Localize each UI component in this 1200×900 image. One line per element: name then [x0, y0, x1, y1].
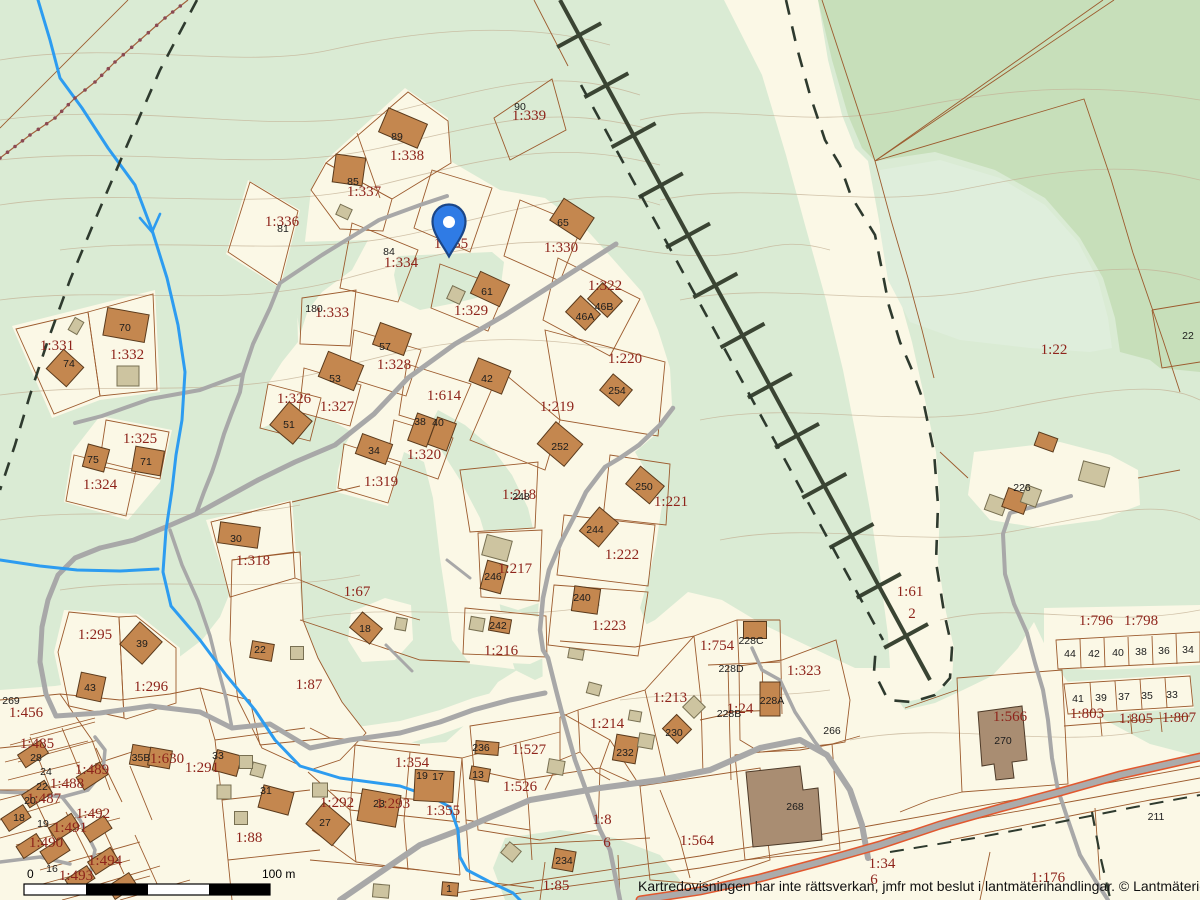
svg-text:1:87: 1:87 — [296, 677, 323, 693]
svg-text:42: 42 — [1088, 648, 1100, 660]
svg-text:1:324: 1:324 — [83, 477, 118, 493]
svg-text:1:219: 1:219 — [540, 399, 574, 415]
svg-text:1:222: 1:222 — [605, 547, 639, 563]
svg-text:35B: 35B — [132, 752, 151, 764]
svg-text:1:338: 1:338 — [390, 148, 424, 164]
svg-text:18: 18 — [359, 623, 371, 635]
svg-text:22: 22 — [36, 781, 48, 793]
svg-text:46A: 46A — [576, 311, 595, 323]
svg-text:30: 30 — [230, 533, 242, 545]
svg-text:90: 90 — [514, 101, 526, 113]
svg-text:42: 42 — [481, 373, 493, 385]
svg-text:236: 236 — [472, 742, 490, 754]
svg-text:1:221: 1:221 — [654, 494, 688, 510]
svg-text:33: 33 — [1166, 689, 1178, 701]
svg-text:246: 246 — [484, 571, 502, 583]
svg-text:1:330: 1:330 — [544, 240, 578, 256]
svg-text:1:220: 1:220 — [608, 351, 642, 367]
svg-text:234: 234 — [555, 855, 573, 867]
svg-text:1:328: 1:328 — [377, 357, 411, 373]
svg-text:1:527: 1:527 — [512, 742, 547, 758]
svg-text:40: 40 — [1112, 647, 1124, 659]
svg-text:1:85: 1:85 — [543, 878, 570, 894]
svg-text:1:332: 1:332 — [110, 347, 144, 363]
svg-text:1:223: 1:223 — [592, 618, 626, 634]
svg-text:1:490: 1:490 — [29, 835, 63, 851]
svg-text:1:488: 1:488 — [50, 776, 84, 792]
svg-text:1:796: 1:796 — [1079, 613, 1114, 629]
svg-text:40: 40 — [432, 417, 444, 429]
svg-text:1:8: 1:8 — [592, 812, 611, 828]
svg-text:228B: 228B — [717, 708, 742, 720]
svg-text:27: 27 — [319, 817, 331, 829]
svg-text:65: 65 — [557, 217, 569, 229]
svg-text:Kartredovisningen har inte rät: Kartredovisningen har inte rättsverkan, … — [638, 878, 1200, 894]
svg-text:1:326: 1:326 — [277, 391, 312, 407]
svg-text:250: 250 — [635, 481, 653, 493]
svg-text:228C: 228C — [738, 635, 764, 647]
svg-text:31: 31 — [260, 785, 272, 797]
svg-text:17: 17 — [432, 771, 444, 783]
svg-text:84: 84 — [383, 246, 395, 258]
svg-text:1:291: 1:291 — [185, 760, 219, 776]
svg-text:38: 38 — [414, 416, 426, 428]
svg-text:43: 43 — [84, 682, 96, 694]
svg-text:1:494: 1:494 — [88, 853, 123, 869]
svg-text:1:493: 1:493 — [59, 868, 93, 884]
svg-text:28: 28 — [30, 752, 42, 764]
svg-text:1:325: 1:325 — [123, 431, 157, 447]
svg-text:228A: 228A — [760, 695, 785, 707]
svg-text:1:213: 1:213 — [653, 690, 687, 706]
svg-text:232: 232 — [616, 747, 634, 759]
svg-text:1:319: 1:319 — [364, 474, 398, 490]
svg-text:34: 34 — [1182, 644, 1194, 656]
svg-text:1:320: 1:320 — [407, 447, 441, 463]
svg-text:13: 13 — [472, 769, 484, 781]
svg-text:51: 51 — [283, 419, 295, 431]
svg-text:2: 2 — [908, 606, 916, 622]
svg-text:16: 16 — [46, 863, 58, 875]
svg-text:44: 44 — [1064, 648, 1076, 660]
svg-text:1: 1 — [446, 883, 452, 895]
svg-text:1:318: 1:318 — [236, 553, 270, 569]
svg-text:1:566: 1:566 — [993, 709, 1028, 725]
svg-text:254: 254 — [608, 385, 626, 397]
svg-text:18: 18 — [13, 812, 25, 824]
svg-text:22: 22 — [254, 644, 266, 656]
svg-text:270: 270 — [994, 735, 1012, 747]
svg-text:1:61: 1:61 — [897, 584, 924, 600]
svg-text:1:754: 1:754 — [700, 638, 735, 654]
svg-text:24: 24 — [40, 766, 52, 778]
svg-text:1:295: 1:295 — [78, 627, 112, 643]
svg-text:37: 37 — [1118, 691, 1130, 703]
svg-text:70: 70 — [119, 322, 131, 334]
svg-text:100 m: 100 m — [262, 867, 295, 881]
svg-text:1:331: 1:331 — [40, 338, 74, 354]
svg-text:35: 35 — [1141, 690, 1153, 702]
svg-text:1:88: 1:88 — [236, 830, 263, 846]
svg-text:268: 268 — [786, 801, 804, 813]
svg-text:211: 211 — [1148, 811, 1165, 823]
svg-text:33: 33 — [212, 750, 224, 762]
svg-text:1:217: 1:217 — [498, 561, 533, 577]
svg-text:244: 244 — [586, 524, 604, 536]
svg-text:19: 19 — [37, 818, 49, 830]
svg-text:1:323: 1:323 — [787, 663, 821, 679]
svg-text:74: 74 — [63, 358, 75, 370]
svg-text:1:805: 1:805 — [1119, 711, 1153, 727]
svg-text:1:491: 1:491 — [53, 820, 87, 836]
svg-text:1:630: 1:630 — [150, 751, 184, 767]
svg-text:19: 19 — [416, 770, 428, 782]
svg-text:39: 39 — [136, 638, 148, 650]
svg-text:6: 6 — [603, 835, 611, 851]
svg-text:34: 34 — [368, 445, 380, 457]
svg-text:20: 20 — [24, 795, 36, 807]
svg-text:39: 39 — [1095, 692, 1107, 704]
svg-text:1:526: 1:526 — [503, 779, 538, 795]
svg-text:269: 269 — [2, 695, 20, 707]
svg-text:266: 266 — [823, 725, 841, 737]
svg-text:1:329: 1:329 — [454, 303, 488, 319]
svg-text:1:216: 1:216 — [484, 643, 519, 659]
svg-text:89: 89 — [391, 131, 403, 143]
svg-text:1:564: 1:564 — [680, 833, 715, 849]
svg-text:36: 36 — [1158, 645, 1170, 657]
svg-text:61: 61 — [481, 286, 493, 298]
svg-text:1:214: 1:214 — [590, 716, 625, 732]
svg-text:240: 240 — [573, 592, 591, 604]
svg-text:46B: 46B — [595, 301, 614, 313]
svg-text:1:614: 1:614 — [427, 388, 462, 404]
svg-text:1:354: 1:354 — [395, 755, 430, 771]
svg-text:226: 226 — [1013, 482, 1031, 494]
svg-text:38: 38 — [1135, 646, 1147, 658]
svg-text:228D: 228D — [718, 663, 744, 675]
svg-text:41: 41 — [1072, 693, 1084, 705]
svg-text:1:355: 1:355 — [426, 803, 460, 819]
svg-text:75: 75 — [87, 454, 99, 466]
svg-text:1:327: 1:327 — [320, 399, 355, 415]
svg-text:23: 23 — [373, 798, 385, 810]
svg-text:85: 85 — [347, 176, 359, 188]
svg-text:22: 22 — [1182, 330, 1194, 342]
svg-text:0: 0 — [27, 867, 34, 881]
svg-text:230: 230 — [665, 727, 683, 739]
svg-text:1:34: 1:34 — [869, 856, 896, 872]
svg-text:1:322: 1:322 — [588, 278, 622, 294]
svg-text:1:807: 1:807 — [1162, 710, 1197, 726]
svg-text:1:456: 1:456 — [9, 705, 44, 721]
svg-text:1:67: 1:67 — [344, 584, 371, 600]
svg-text:1:296: 1:296 — [134, 679, 169, 695]
svg-text:53: 53 — [329, 373, 341, 385]
svg-text:1:798: 1:798 — [1124, 613, 1158, 629]
svg-text:180: 180 — [305, 303, 323, 315]
svg-text:81: 81 — [277, 223, 289, 235]
svg-text:1:22: 1:22 — [1041, 342, 1068, 358]
svg-text:1:292: 1:292 — [320, 795, 354, 811]
svg-text:252: 252 — [551, 441, 569, 453]
svg-text:242: 242 — [489, 620, 507, 632]
svg-text:1:485: 1:485 — [20, 736, 54, 752]
svg-text:71: 71 — [140, 456, 152, 468]
svg-text:1:803: 1:803 — [1070, 706, 1104, 722]
svg-text:248: 248 — [512, 491, 530, 503]
svg-text:57: 57 — [379, 341, 391, 353]
